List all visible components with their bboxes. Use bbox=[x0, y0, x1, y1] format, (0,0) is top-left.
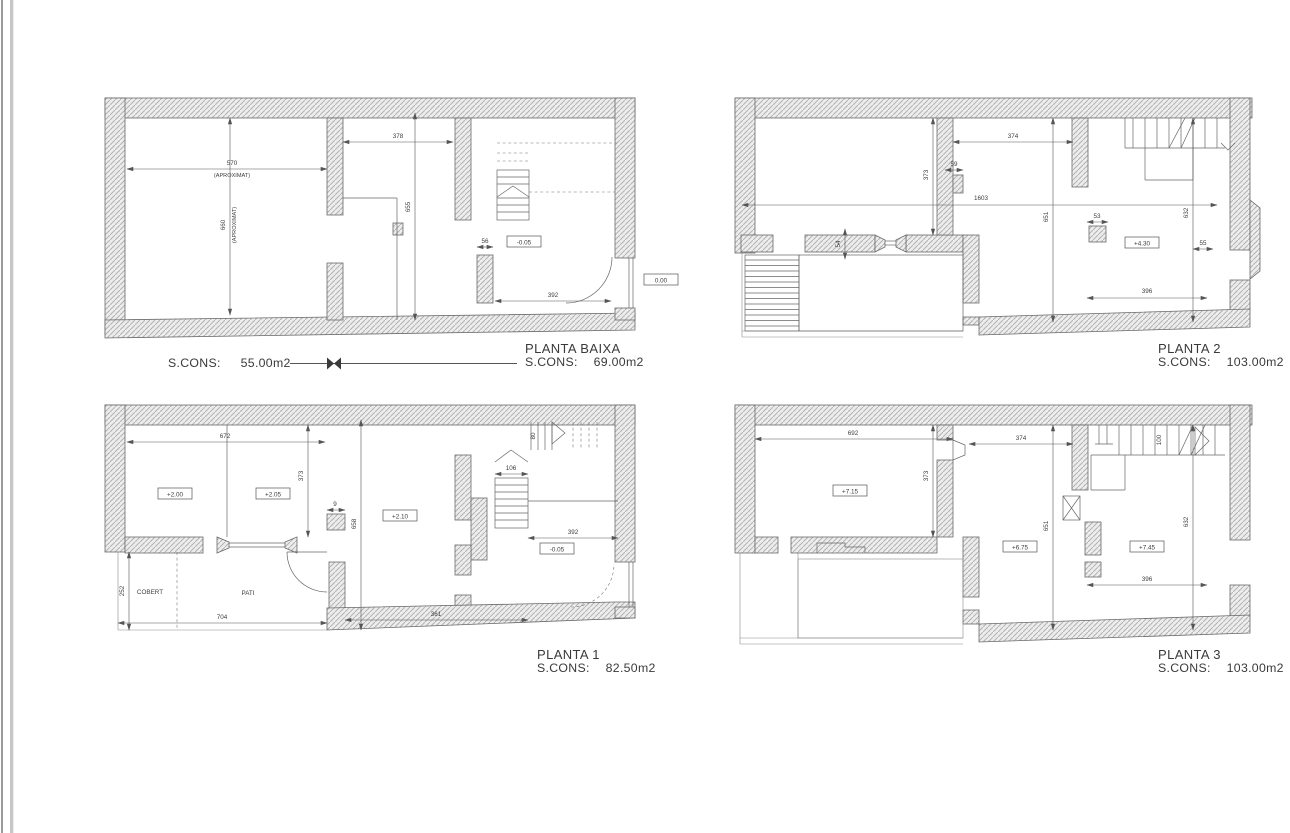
dim-label-704: 704 bbox=[217, 614, 228, 621]
dim-label-672: 672 bbox=[220, 433, 231, 440]
scons-label: S.CONS: bbox=[168, 356, 221, 370]
dim-label-1603: 1603 bbox=[974, 195, 989, 202]
dim-label-9: 9 bbox=[333, 501, 337, 508]
level-210: +2.10 bbox=[392, 514, 408, 521]
dim-label-655: 655 bbox=[405, 201, 412, 212]
dim-label-632: 632 bbox=[1183, 207, 1190, 218]
planta-baixa-drawing: 570 (APROXIMAT) 660 (APROXIMAT) 378 655 … bbox=[105, 95, 680, 345]
walls bbox=[105, 405, 635, 630]
level-205: +2.05 bbox=[265, 492, 281, 499]
dim-label-392: 392 bbox=[548, 292, 559, 299]
page-edge-line bbox=[1, 0, 3, 833]
door-symbol bbox=[953, 440, 965, 460]
dim-label-56: 56 bbox=[481, 238, 489, 245]
walls bbox=[105, 98, 635, 338]
level-markers: -0.05 0.00 bbox=[507, 236, 678, 285]
planta-1-drawing: 672 373 9 658 106 80 392 252 704 361 COB… bbox=[105, 402, 645, 647]
planta-3-titleblock: PLANTA 3 S.CONS:103.00m2 bbox=[1158, 648, 1284, 675]
door-arc bbox=[566, 257, 612, 303]
dimensions: 692 373 374 651 632 396 100 bbox=[755, 425, 1207, 630]
scons-value: 103.00m2 bbox=[1227, 661, 1284, 675]
planta-1-titleblock: PLANTA 1 S.CONS:82.50m2 bbox=[537, 648, 656, 675]
dim-label-373: 373 bbox=[298, 470, 305, 481]
scons-label: S.CONS: bbox=[1158, 355, 1211, 369]
planta-baixa-area-left: S.CONS:55.00m2 bbox=[168, 356, 291, 370]
dimensions: 374 59 373 1603 651 632 54 53 55 396 bbox=[742, 118, 1217, 322]
dim-label-651: 651 bbox=[1043, 520, 1050, 531]
plan-title: PLANTA 3 bbox=[1158, 648, 1284, 661]
scons-value: 103.00m2 bbox=[1227, 355, 1284, 369]
dim-label-374: 374 bbox=[1016, 435, 1027, 442]
level-zero: 0.00 bbox=[655, 278, 668, 285]
planta-3-drawing: 692 373 374 651 632 396 100 +7.15 +6.75 … bbox=[733, 402, 1263, 647]
level-675: +6.75 bbox=[1012, 545, 1028, 552]
dim-label-55: 55 bbox=[1199, 240, 1207, 247]
scons-value: 69.00m2 bbox=[594, 355, 644, 369]
scons-label: S.CONS: bbox=[525, 355, 578, 369]
walls bbox=[735, 405, 1252, 642]
planta-2-drawing: 374 59 373 1603 651 632 54 53 55 396 +4.… bbox=[733, 95, 1263, 345]
level-715: +7.15 bbox=[842, 489, 858, 496]
dim-label-373: 373 bbox=[923, 169, 930, 180]
dim-label-54: 54 bbox=[835, 240, 842, 248]
level-200: +2.00 bbox=[167, 492, 183, 499]
dim-label-658: 658 bbox=[351, 518, 358, 529]
dim-label-660: 660 bbox=[220, 219, 227, 230]
level-430: +4.30 bbox=[1134, 241, 1150, 248]
dim-label-396: 396 bbox=[1142, 576, 1153, 583]
dim-label-373: 373 bbox=[923, 470, 930, 481]
dim-label-53: 53 bbox=[1093, 213, 1101, 220]
terrace bbox=[742, 241, 963, 337]
dim-label-378: 378 bbox=[393, 133, 404, 140]
scons-value: 55.00m2 bbox=[241, 356, 291, 370]
room-label-pati: PATI bbox=[241, 590, 254, 597]
pillar bbox=[393, 223, 403, 235]
staircase bbox=[497, 143, 617, 220]
dim-label-651: 651 bbox=[1043, 211, 1050, 222]
plan-title: PLANTA BAIXA bbox=[525, 342, 644, 355]
plan-sheet: 570 (APROXIMAT) 660 (APROXIMAT) 378 655 … bbox=[0, 0, 1290, 833]
staircase bbox=[1125, 118, 1235, 180]
planta-baixa-titleblock: PLANTA BAIXA S.CONS:69.00m2 bbox=[525, 342, 644, 369]
planta-2-titleblock: PLANTA 2 S.CONS:103.00m2 bbox=[1158, 342, 1284, 369]
dim-label-106: 106 bbox=[506, 465, 517, 472]
page-edge-strip bbox=[10, 0, 14, 833]
room-labels: COBERT PATI bbox=[137, 589, 255, 597]
scons-label: S.CONS: bbox=[537, 661, 590, 675]
dim-label-80: 80 bbox=[530, 432, 537, 440]
plan-title: PLANTA 2 bbox=[1158, 342, 1284, 355]
dim-label-59: 59 bbox=[950, 161, 958, 168]
dim-label-252: 252 bbox=[119, 585, 126, 596]
dim-label-632: 632 bbox=[1183, 516, 1190, 527]
dim-label-392: 392 bbox=[568, 529, 579, 536]
dim-label-aproximat-v: (APROXIMAT) bbox=[232, 207, 238, 243]
dim-label-100: 100 bbox=[1156, 434, 1163, 445]
dim-label-374: 374 bbox=[1008, 133, 1019, 140]
scons-value: 82.50m2 bbox=[606, 661, 656, 675]
staircase bbox=[495, 422, 597, 528]
level-minus005: -0.05 bbox=[550, 547, 565, 554]
section-divider bbox=[285, 353, 525, 373]
dim-label-692: 692 bbox=[848, 430, 859, 437]
interior-lines bbox=[118, 425, 633, 630]
dim-label-396: 396 bbox=[1142, 288, 1153, 295]
plan-title: PLANTA 1 bbox=[537, 648, 656, 661]
bowtie-symbol bbox=[327, 358, 334, 370]
level-markers: +4.30 bbox=[1125, 237, 1159, 248]
room-label-cobert: COBERT bbox=[137, 589, 163, 596]
dimensions: 570 (APROXIMAT) 660 (APROXIMAT) 378 655 … bbox=[127, 113, 611, 320]
dimensions: 672 373 9 658 106 80 392 252 704 361 bbox=[118, 420, 618, 630]
dim-label-aproximat-h: (APROXIMAT) bbox=[214, 173, 250, 179]
scons-label: S.CONS: bbox=[1158, 661, 1211, 675]
level-minus005: -0.05 bbox=[517, 240, 532, 247]
level-745: +7.45 bbox=[1139, 545, 1155, 552]
dim-label-361: 361 bbox=[431, 611, 442, 618]
dim-label-570: 570 bbox=[227, 160, 238, 167]
